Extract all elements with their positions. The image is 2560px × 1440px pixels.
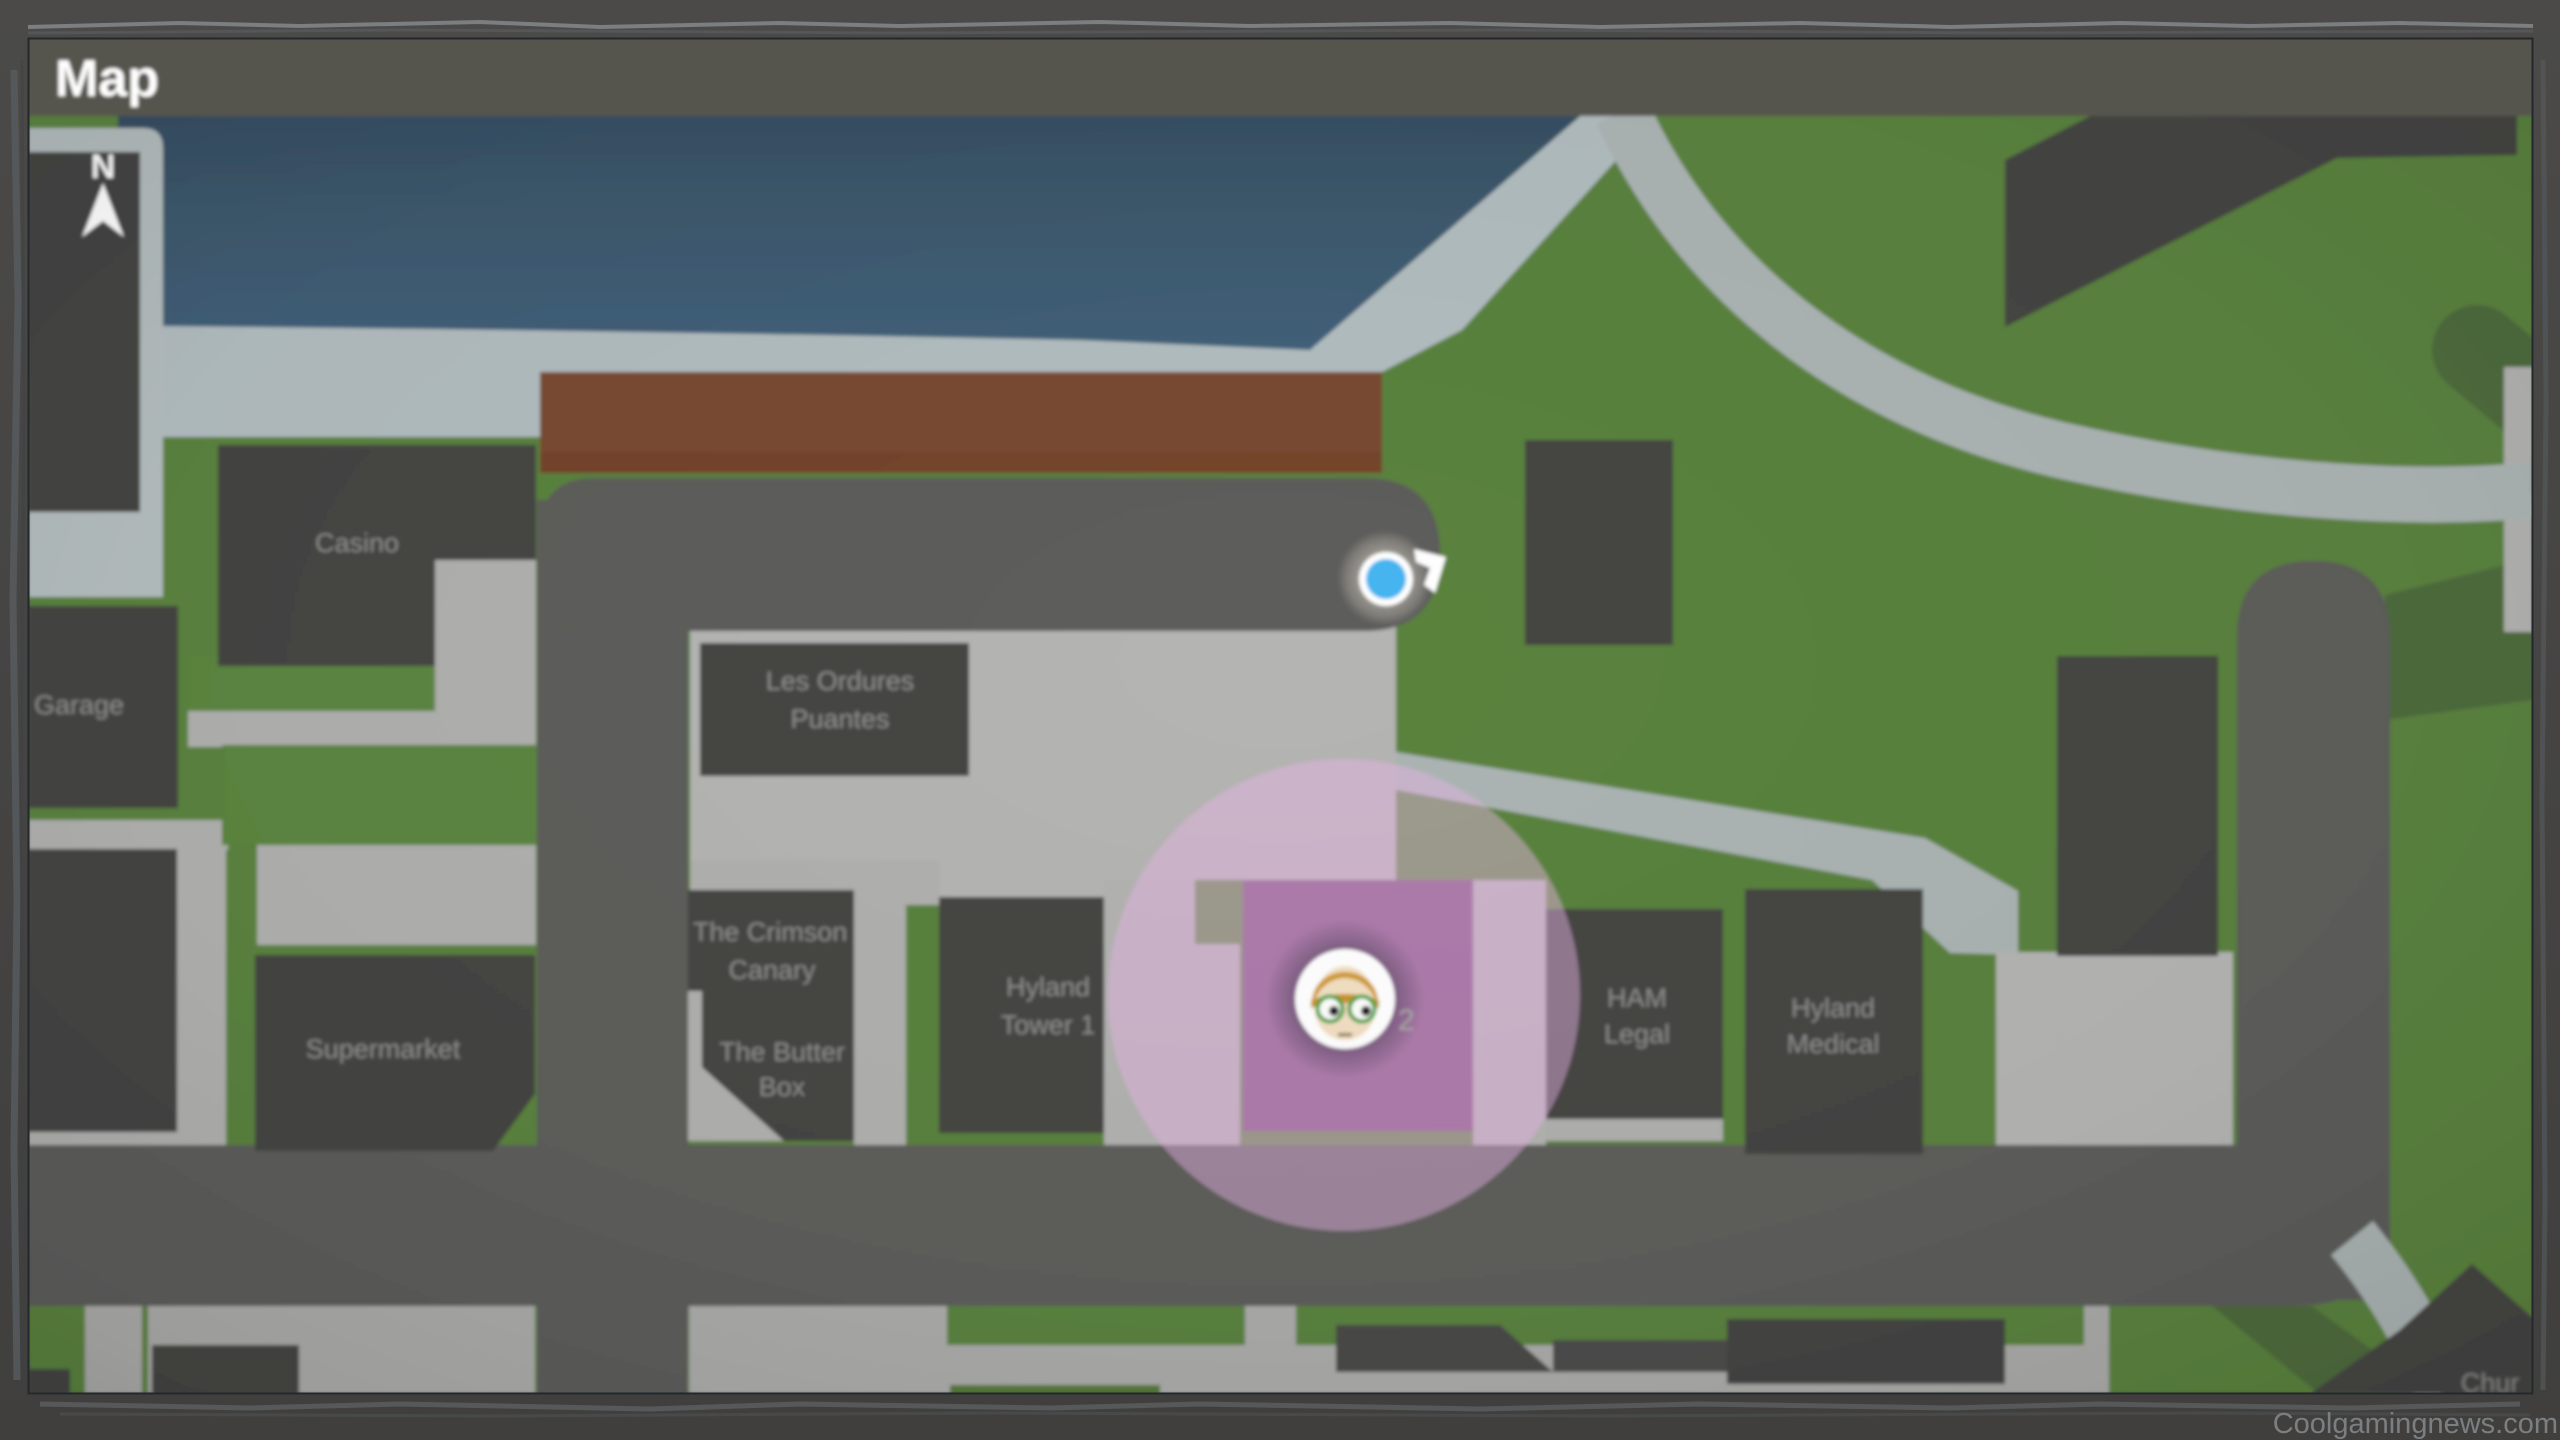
svg-text:Coolgamingnews.com: Coolgamingnews.com <box>2273 1408 2558 1440</box>
svg-text:Map: Map <box>55 50 159 108</box>
